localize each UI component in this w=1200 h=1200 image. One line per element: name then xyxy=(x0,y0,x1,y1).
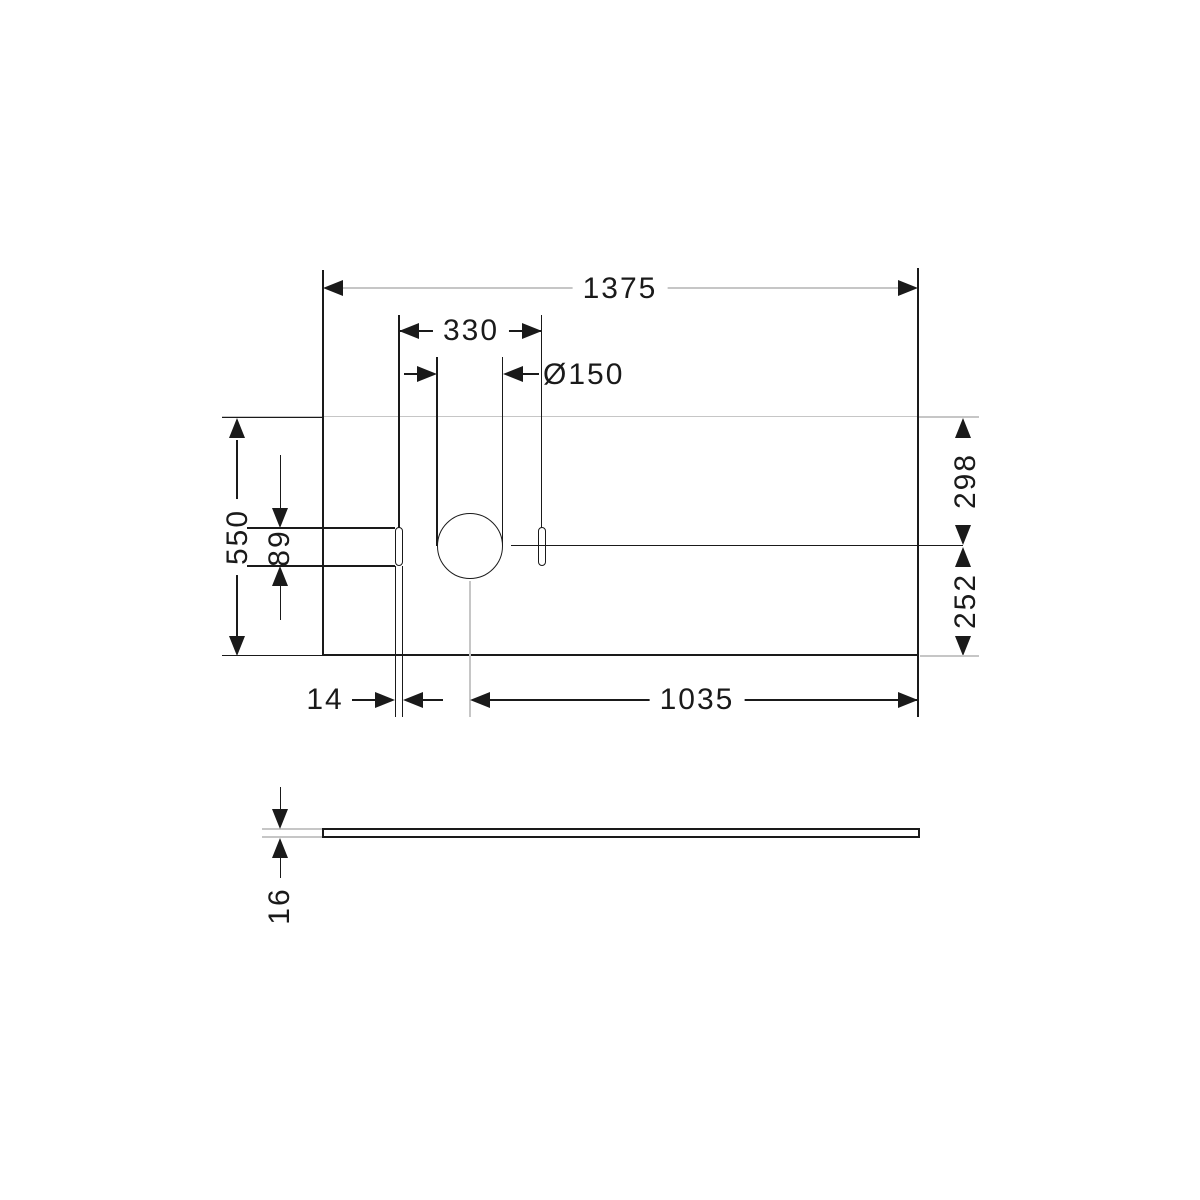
dim-252-arrow-top xyxy=(955,547,971,567)
dim-width-label: 1375 xyxy=(573,274,668,304)
dim-1035-arrow-right xyxy=(898,692,918,708)
dim-center-to-front-label: 252 xyxy=(951,573,981,629)
ext-line-diameter-right xyxy=(502,357,504,546)
dim-89-arrow-top xyxy=(272,508,288,528)
countertop-side-profile xyxy=(322,828,920,838)
dim-252-arrow-bottom xyxy=(955,636,971,656)
ext-line-thickness-top xyxy=(262,828,322,830)
slot-cutout-left xyxy=(395,527,403,566)
dim-150-arrow-left xyxy=(417,366,437,382)
dim-14-arrow-left xyxy=(375,692,395,708)
dim-16-tail-top xyxy=(280,787,282,809)
ext-line-330-right xyxy=(541,315,543,528)
dim-150-tail-right xyxy=(523,373,539,375)
dim-depth-label: 550 xyxy=(223,499,253,575)
dim-16-tail-bottom xyxy=(280,858,282,878)
dim-14-arrow-right xyxy=(403,692,423,708)
dim-14-tail-right xyxy=(423,699,443,701)
dim-depth-arrow-top xyxy=(229,418,245,438)
dim-330-arrow-left xyxy=(399,323,419,339)
dim-298-arrow-top xyxy=(955,418,971,438)
dim-298-arrow-bottom xyxy=(955,525,971,545)
dim-thickness-label: 16 xyxy=(265,887,295,924)
dim-1035-arrow-left xyxy=(470,692,490,708)
ext-line-diameter-left xyxy=(436,357,438,546)
hole-centerline xyxy=(511,545,963,547)
technical-drawing: 1375 330 Ø150 550 89 298 252 14 1035 xyxy=(0,0,1200,1200)
slot-cutout-right xyxy=(538,527,546,566)
dim-hole-diameter-label: Ø150 xyxy=(543,360,624,390)
countertop-outline xyxy=(322,417,919,656)
dim-89-tail-top xyxy=(280,455,282,508)
ext-line-89-top xyxy=(247,527,395,529)
dim-330-label: 330 xyxy=(433,316,509,346)
dim-width-arrow-left xyxy=(323,280,343,296)
dim-89-arrow-bottom xyxy=(272,566,288,586)
dim-width-arrow-right xyxy=(898,280,918,296)
dim-depth-arrow-bottom xyxy=(229,636,245,656)
dim-150-tail-left xyxy=(404,373,417,375)
circular-cutout xyxy=(437,513,503,579)
dim-330-arrow-right xyxy=(522,323,542,339)
dim-16-arrow-bottom xyxy=(272,838,288,858)
ext-line-330-left xyxy=(398,315,400,528)
ext-line-thickness-bottom xyxy=(262,836,322,838)
dim-rear-to-center-label: 298 xyxy=(951,453,981,509)
dim-16-arrow-top xyxy=(272,809,288,829)
dim-150-arrow-right xyxy=(503,366,523,382)
dim-slot-width-label: 14 xyxy=(306,685,343,715)
ext-line-front-right xyxy=(920,655,979,657)
dim-14-tail-left xyxy=(352,699,375,701)
dim-slot-length-label: 89 xyxy=(265,529,295,566)
dim-89-tail-bottom xyxy=(280,586,282,620)
dim-center-to-right-label: 1035 xyxy=(650,685,745,715)
